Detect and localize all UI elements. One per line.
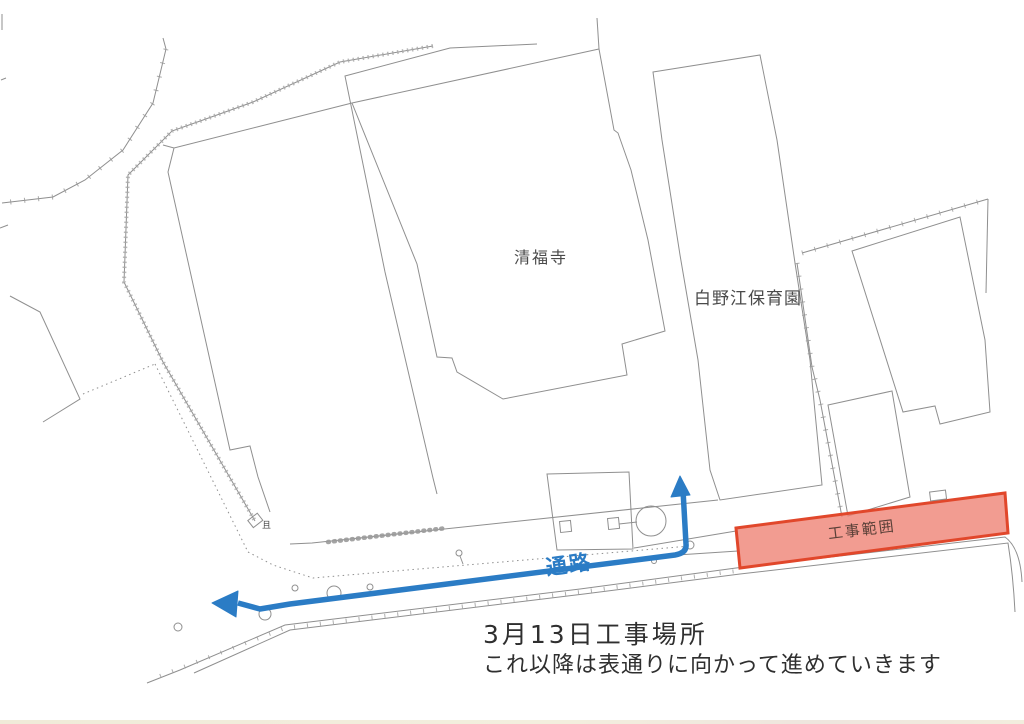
lower-left-road	[10, 296, 80, 422]
dotted-boundaries	[83, 364, 690, 578]
small-house-outline	[547, 472, 666, 550]
east-boundary-ticked	[797, 263, 842, 517]
shed-glyph-label: 且	[262, 518, 271, 531]
nursery-label: 白野江保育園	[694, 284, 802, 309]
cliff-hatch-line	[124, 46, 433, 521]
scanned-site-map: 清福寺 白野江保育園 工事範囲 通路 且 3月13日工事場所 これ以降は表通りに…	[0, 0, 1024, 724]
edge-marks	[0, 14, 8, 228]
west-parcel-outline	[163, 103, 352, 512]
left-road-line	[2, 38, 166, 203]
right-small-building-outline	[828, 391, 910, 516]
temple-building-outline	[352, 49, 665, 399]
northeast-boundary-ticked	[802, 199, 988, 293]
route-arrow	[212, 476, 690, 617]
passage-label: 通路	[544, 546, 594, 582]
parking-scallop-row	[328, 528, 447, 542]
note-line-1: 3月13日工事場所	[483, 615, 708, 651]
nursery-building-outline	[653, 55, 822, 500]
right-large-building-outline	[852, 217, 990, 424]
temple-label: 清福寺	[514, 244, 568, 268]
note-line-2: これ以降は表通りに向かって進めていきます	[483, 647, 942, 679]
scan-edge-artifact	[0, 720, 1024, 724]
temple-parcel-boundary	[345, 44, 537, 494]
